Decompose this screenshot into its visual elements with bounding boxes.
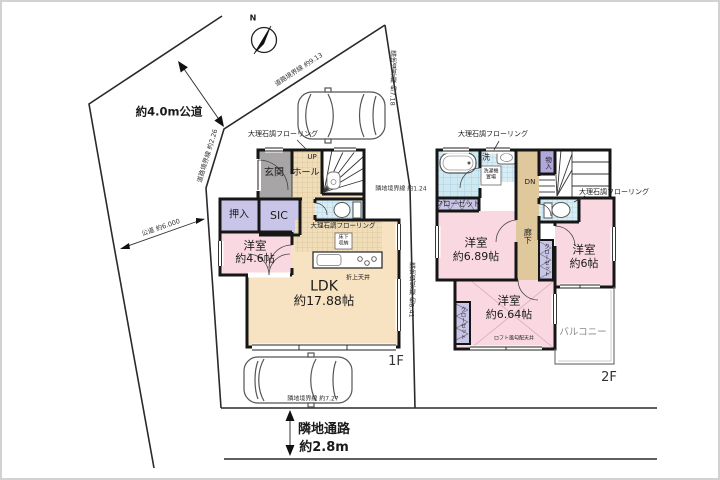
balcony-outline [555, 287, 614, 364]
up-label: UP [307, 154, 316, 162]
boundary-east-upper: 隣地境界線 約7.18 [388, 50, 395, 106]
floor2-label: 2F [601, 371, 617, 385]
boundary-east-mid: 隣地境界線 約1.24 [375, 187, 426, 194]
ceiling-note-1f: 折上天井 [346, 276, 370, 283]
bedroom689-name: 洋室 [465, 237, 488, 250]
north-label: N [250, 15, 257, 24]
toilet-bowl-1f [334, 203, 350, 218]
bedroom689-size: 約6.89帖 [453, 251, 500, 263]
floorplan-drawing [2, 2, 720, 480]
bedroom6-size: 約6帖 [570, 258, 599, 270]
entrance-label: 玄関 [264, 168, 284, 179]
ldk-size: 約17.88帖 [294, 294, 355, 308]
sic-label: SIC [270, 210, 288, 222]
floorplan-page: N 約4.0m公道 道路境界線 約9.13 道路境界線 約2.26 公道 約6.… [0, 0, 720, 480]
oshiire-label: 押入 [229, 210, 249, 221]
corridor-area [516, 150, 539, 280]
north-compass [252, 26, 277, 54]
washroom-label: 洗 [482, 154, 490, 163]
corridor-label: 廊下 [523, 228, 532, 244]
ceiling-note-2f: ロフト風勾配天井 [494, 336, 534, 342]
bedroom46-size: 約4.6帖 [235, 253, 275, 265]
flooring-note-2f-top: 大理石調フローリング [458, 131, 528, 139]
bedroom46-name: 洋室 [244, 240, 267, 253]
flooring-note-2f-side: 大理石調フローリング [579, 189, 649, 197]
road-width-label: 約4.0m公道 [136, 106, 203, 119]
kitchen-sink [317, 255, 341, 266]
closet-b-label: クローゼット [543, 244, 549, 277]
boundary-south: 隣地境界線 約7.27 [287, 397, 338, 404]
bedroom664-size: 約6.64帖 [486, 309, 533, 321]
boundary-east-lower: 隣地境界線 約8.41 [407, 262, 414, 318]
bedroom6-name: 洋室 [573, 244, 596, 257]
closet-a-label: クローゼット [436, 200, 481, 208]
floor1-label: 1F [388, 355, 404, 369]
balcony-label: バルコニー [559, 328, 606, 338]
hand-basin [327, 172, 340, 189]
flooring-note-1f: 大理石調フローリング [248, 131, 318, 139]
laundry-label: 洗濯機置場 [483, 170, 499, 181]
bedroom664-name: 洋室 [498, 295, 521, 308]
kitchen-counter [313, 252, 382, 268]
passage-width-label: 約2.8m [299, 441, 349, 455]
dimension-arrow-passage [286, 410, 295, 456]
storage-label: 物入 [543, 157, 550, 170]
closet-c-label: クローゼット [459, 307, 465, 340]
toilet-bowl-2f [552, 203, 570, 218]
floor-storage-label: 床下収納 [338, 236, 350, 247]
dn-label: DN [525, 179, 536, 187]
passage-label: 隣地通路 [298, 423, 350, 437]
hall-label: ホール [292, 169, 319, 179]
kitchen-flooring-note: 大理石調フローリング [311, 222, 376, 229]
